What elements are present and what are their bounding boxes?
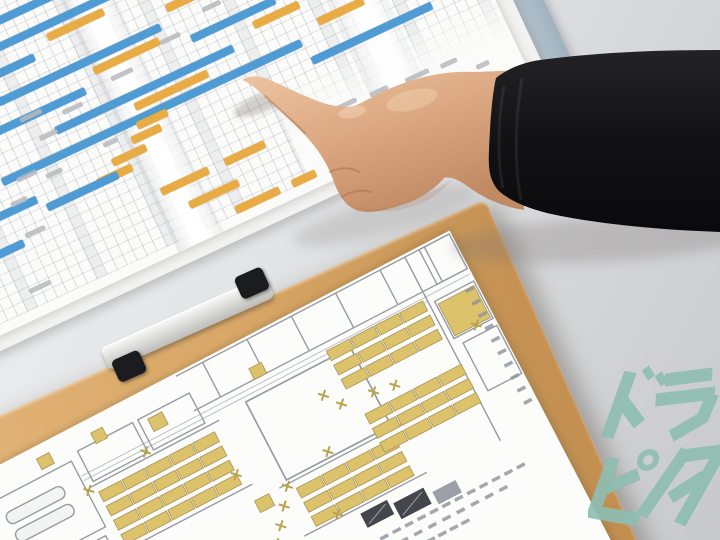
pointing-hand — [242, 70, 524, 212]
logo-line1 — [607, 368, 719, 438]
brand-logo: ドラピタ — [588, 360, 720, 540]
logo-katakana-art — [588, 360, 720, 540]
black-sleeve — [489, 50, 720, 232]
photo-scene: ドラピタ — [0, 0, 720, 540]
logo-line2 — [592, 450, 720, 524]
